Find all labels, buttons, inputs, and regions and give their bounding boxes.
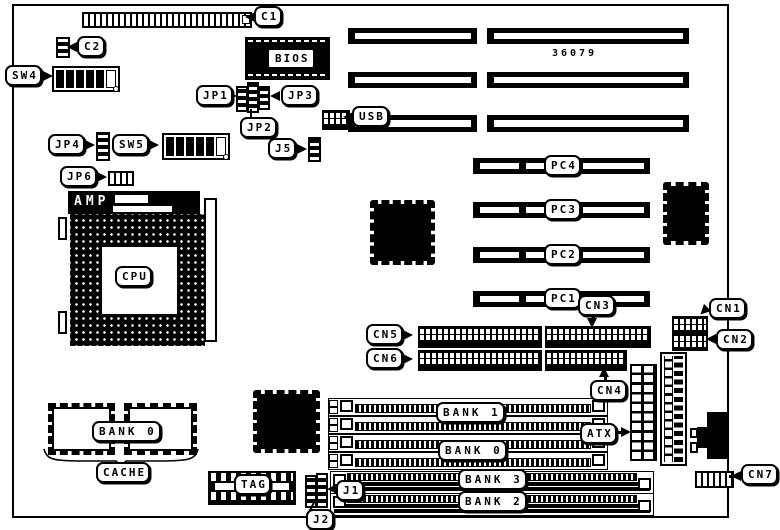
jp3-jumper [258, 86, 270, 110]
label-j1: J1 [336, 480, 364, 501]
cn6-header [418, 350, 542, 371]
atx-pointer [621, 427, 631, 437]
label-cn7: CN7 [741, 464, 778, 485]
c2-pointer [67, 42, 77, 52]
label-cn4: CN4 [590, 380, 627, 401]
cn3-header [545, 326, 651, 348]
socket-lever [204, 198, 217, 342]
cn1-header [672, 316, 708, 334]
label-jp4: JP4 [48, 134, 85, 155]
label-cache: CACHE [96, 462, 150, 483]
label-jp1: JP1 [196, 85, 233, 106]
label-bank3: BANK 3 [458, 469, 527, 490]
label-pc1: PC1 [544, 288, 581, 309]
chipset-qfp-center [370, 200, 435, 265]
cn7-pointer [731, 471, 741, 481]
label-bank0-memory: BANK 0 [438, 440, 507, 461]
board-part-number: 36079 [552, 48, 597, 59]
cn5-pointer [403, 330, 413, 340]
label-amp: AMP [74, 194, 109, 209]
label-jp2: JP2 [240, 117, 277, 138]
cn4-pointer [599, 367, 609, 377]
cn2-header [672, 333, 708, 351]
label-cn3: CN3 [578, 295, 615, 316]
isa-slot-2-left [348, 72, 477, 88]
label-cn1: CN1 [709, 298, 746, 319]
isa-slot-2-right [487, 72, 689, 88]
j5-pointer [297, 144, 307, 154]
io-qfp-right [663, 182, 709, 245]
label-j2: J2 [306, 509, 334, 530]
j5-jumper [308, 137, 321, 162]
cn3-pointer [587, 318, 597, 328]
amp-notch-2 [113, 206, 172, 212]
cn2-pointer [706, 334, 716, 344]
isa-slot-1-right [487, 28, 689, 44]
sw5-pointer [149, 140, 159, 150]
c1-connector [82, 12, 252, 28]
jp4-jumper [96, 132, 110, 161]
keyboard-din-connector [707, 412, 729, 459]
label-sw4: SW4 [5, 65, 42, 86]
label-cpu: CPU [115, 266, 152, 287]
jp6-jumper [108, 171, 134, 186]
label-pc3: PC3 [544, 199, 581, 220]
label-usb: USB [352, 106, 389, 127]
cn4-header [545, 350, 627, 371]
sw4-dip-switch [52, 66, 120, 92]
label-sw5: SW5 [112, 134, 149, 155]
label-tag: TAG [234, 474, 271, 495]
socket-tab-top [58, 217, 67, 240]
sw5-dip-switch [162, 133, 230, 160]
keyboard-tab-2 [690, 442, 698, 453]
label-j5: J5 [268, 138, 296, 159]
motherboard-diagram: C1 C2 SW4 BIOS JP1 JP3 JP2 USB J5 JP4 SW… [0, 0, 780, 530]
label-jp3: JP3 [281, 85, 318, 106]
label-c1: C1 [254, 6, 282, 27]
label-c2: C2 [77, 36, 105, 57]
keyboard-tab-1 [690, 428, 698, 438]
rear-pin-connector [660, 352, 687, 466]
label-cn5: CN5 [366, 324, 403, 345]
sw5-index-dot [223, 154, 229, 160]
isa-slot-3-right [487, 115, 689, 132]
amp-notch-1 [115, 195, 148, 203]
label-bank0-cache: BANK 0 [92, 421, 161, 442]
isa-slot-1-left [348, 28, 477, 44]
atx-power-connector [630, 364, 657, 461]
sw4-index-dot [113, 86, 119, 92]
cn6-pointer [403, 354, 413, 364]
label-cn6: CN6 [366, 348, 403, 369]
label-pc2: PC2 [544, 244, 581, 265]
sw4-pointer [43, 71, 53, 81]
label-atx: ATX [580, 423, 617, 444]
cn5-header [418, 326, 542, 348]
cn7-header [695, 471, 734, 488]
label-bank1: BANK 1 [436, 402, 505, 423]
jp3-pointer [270, 91, 280, 101]
label-jp6: JP6 [60, 166, 97, 187]
label-cn2: CN2 [716, 329, 753, 350]
keyboard-din-neck [697, 427, 707, 448]
cache-controller-qfp [253, 390, 320, 453]
label-bios: BIOS [268, 49, 314, 68]
jp4-pointer [85, 140, 95, 150]
label-pc4: PC4 [544, 155, 581, 176]
socket-tab-bottom [58, 311, 67, 334]
label-bank2: BANK 2 [458, 491, 527, 512]
jp6-pointer [97, 172, 107, 182]
